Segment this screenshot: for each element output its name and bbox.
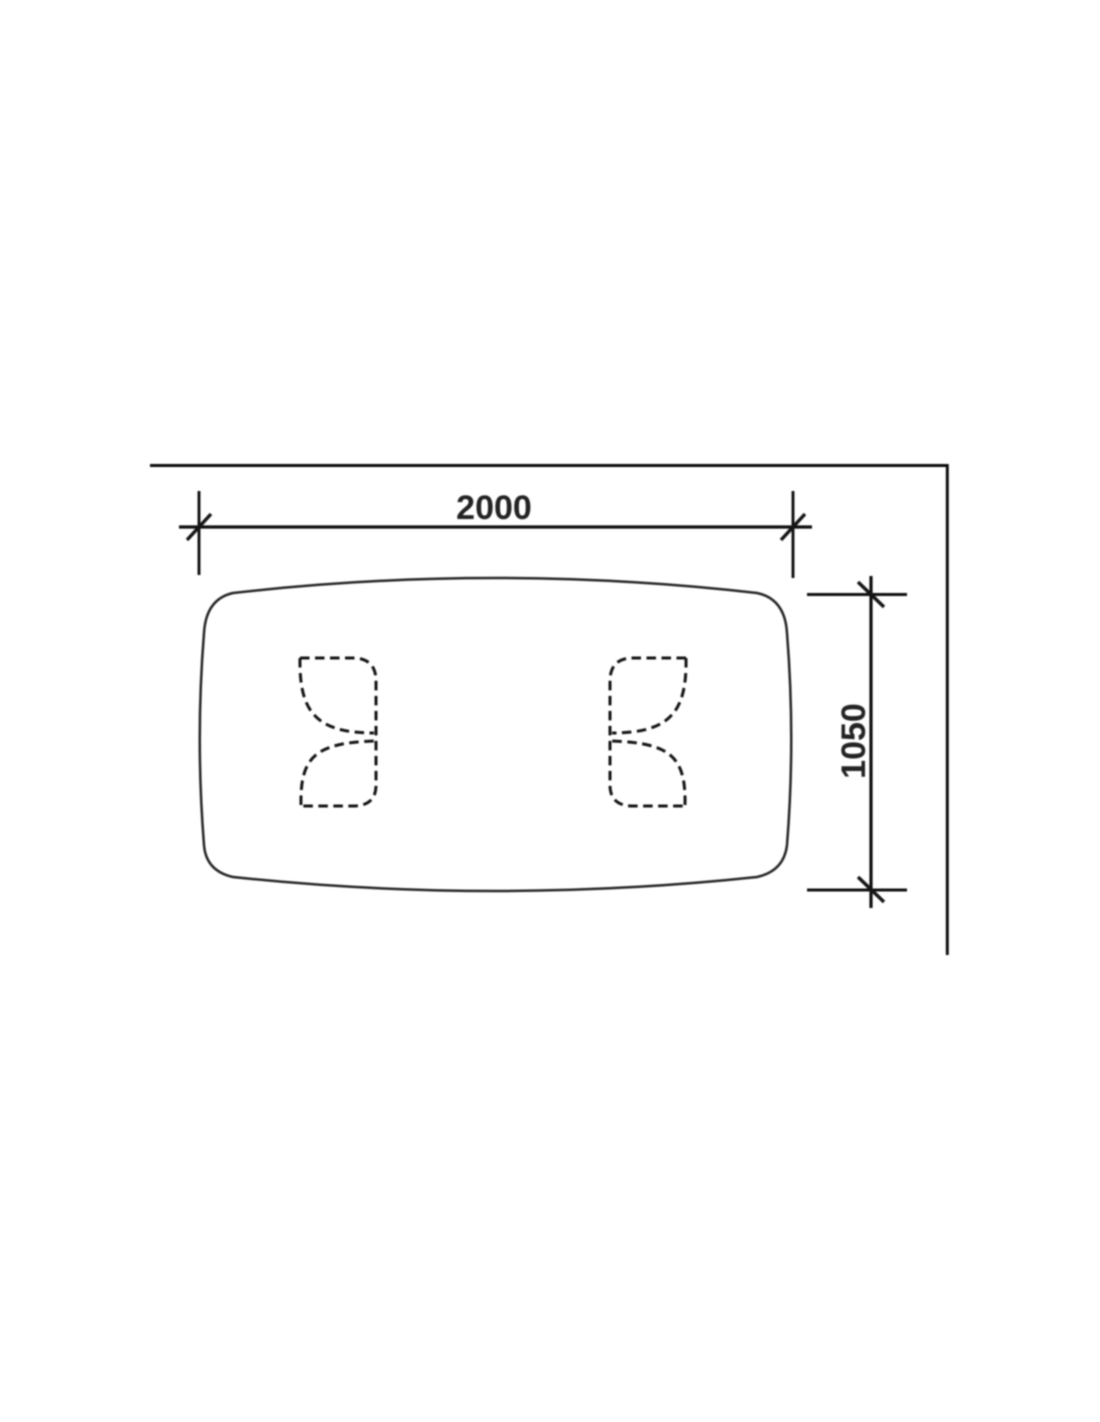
svg-text:2000: 2000	[456, 489, 532, 527]
svg-text:1050: 1050	[835, 703, 873, 779]
